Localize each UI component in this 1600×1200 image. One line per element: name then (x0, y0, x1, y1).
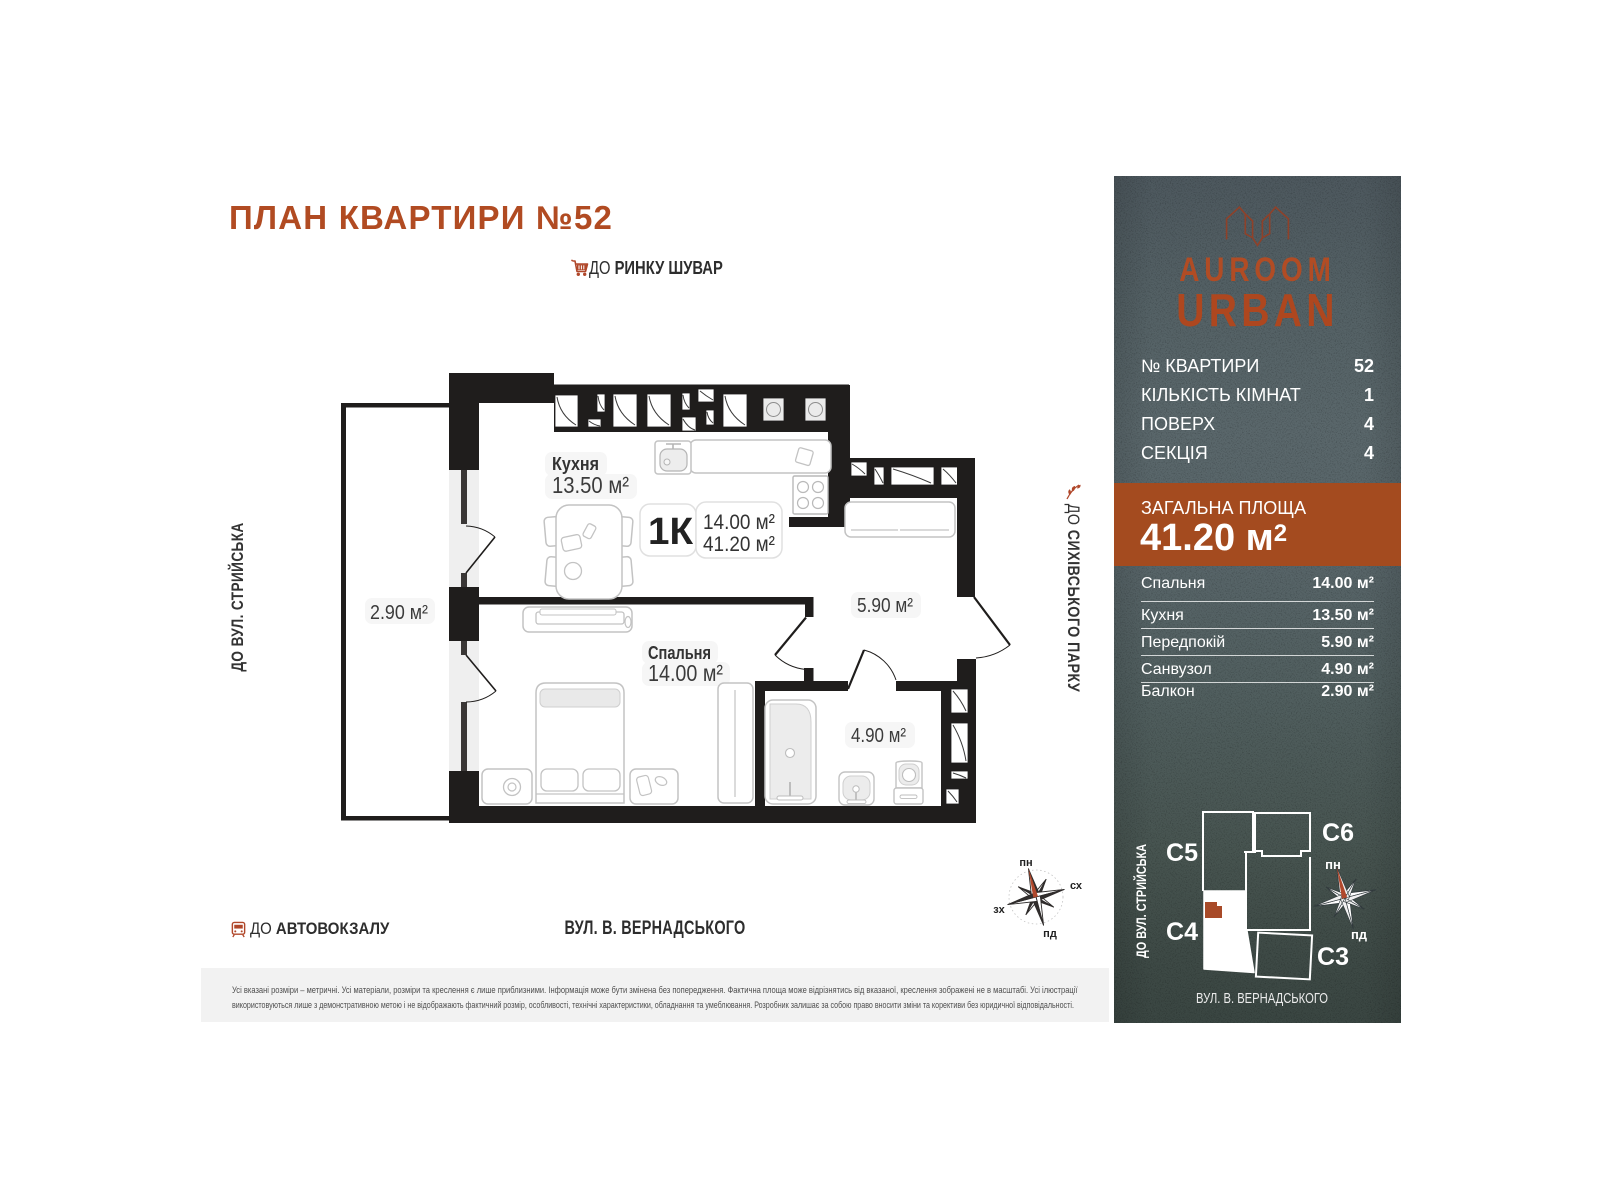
svg-text:С3: С3 (1317, 943, 1349, 971)
svg-text:пд: пд (1351, 927, 1368, 942)
svg-text:1К: 1К (648, 511, 694, 553)
svg-text:сх: сх (1070, 880, 1083, 892)
svg-text:Кухня: Кухня (552, 454, 599, 474)
svg-text:ДО ВУЛ. СТРИЙСЬКА: ДО ВУЛ. СТРИЙСЬКА (1132, 844, 1149, 958)
svg-text:5.90 м²: 5.90 м² (857, 595, 913, 617)
svg-text:зх: зх (993, 904, 1005, 916)
svg-text:С5: С5 (1166, 839, 1198, 867)
svg-text:4.90 м²: 4.90 м² (851, 725, 906, 747)
svg-text:41.20 м²: 41.20 м² (703, 533, 775, 556)
svg-text:пн: пн (1325, 857, 1341, 872)
svg-text:С6: С6 (1322, 819, 1354, 847)
svg-text:13.50 м²: 13.50 м² (552, 472, 629, 498)
svg-text:14.00 м²: 14.00 м² (703, 511, 775, 534)
svg-text:ВУЛ. В. ВЕРНАДСЬКОГО: ВУЛ. В. ВЕРНАДСЬКОГО (1196, 990, 1328, 1007)
svg-text:пд: пд (1043, 928, 1057, 940)
svg-text:пн: пн (1019, 857, 1032, 869)
svg-text:14.00 м²: 14.00 м² (648, 660, 723, 686)
svg-text:С4: С4 (1166, 918, 1198, 946)
svg-text:2.90 м²: 2.90 м² (370, 602, 428, 624)
